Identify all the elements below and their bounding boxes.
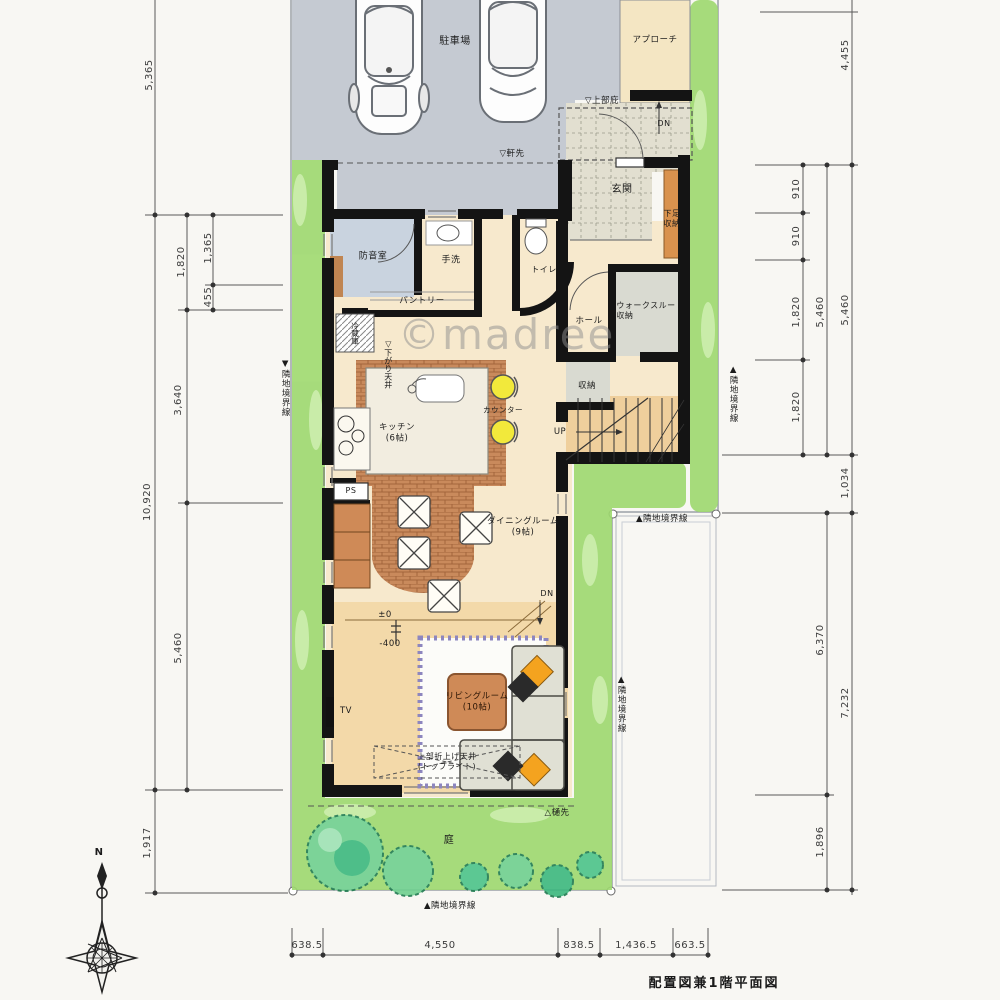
dim-left-outer-0: 5,365: [144, 59, 156, 90]
label-canopy: ▽上部庇: [585, 96, 619, 106]
dim-right-mid-2: 1,896: [815, 826, 827, 857]
label-counter: カウンター: [483, 406, 523, 415]
dim-left-sub-0: 1,365: [203, 232, 215, 263]
label-approach: アプローチ: [632, 35, 677, 45]
dim-right-outer-3: 7,232: [840, 687, 852, 718]
dim-left-outer-2: 1,917: [142, 827, 154, 858]
dim-right-outer-2: 1,034: [840, 467, 852, 498]
label-eaves: ▽軒先: [499, 149, 524, 159]
dim-bottom-0: 638.5: [291, 940, 322, 952]
dim-left-inner-1: 3,640: [173, 384, 185, 415]
dim-bottom-1: 4,550: [424, 940, 455, 952]
label-boundary-mid: ▲隣地境界線: [636, 514, 688, 524]
label-dn-living: DN: [540, 589, 553, 599]
dim-left-outer-1: 10,920: [142, 483, 154, 521]
dim-bottom-2: 838.5: [563, 940, 594, 952]
label-ceiling-note: 上部折上げ天井(トップライト): [417, 752, 477, 772]
label-kitchen: キッチン(6帖): [379, 422, 415, 443]
label-dropped-ceiling: ▽下がり天井: [383, 340, 393, 389]
dim-left-sub-1: 455: [203, 287, 215, 308]
dim-bottom-3: 1,436.5: [615, 940, 657, 952]
dim-bottom-4: 663.5: [674, 940, 705, 952]
label-storage: 収納: [578, 381, 596, 391]
label-walkthrough-storage: ウォークスルー収納: [616, 301, 675, 321]
label-entrance: 玄関: [612, 184, 633, 196]
label-dn-porch: DN: [657, 119, 670, 129]
dim-right-outer-1: 5,460: [840, 294, 852, 325]
label-parking: 駐車場: [439, 36, 471, 48]
label-dining: ダイニングルーム(9帖): [487, 516, 559, 537]
label-level-zero: ±0: [378, 610, 392, 620]
dim-right-inner-0: 910: [791, 179, 803, 200]
watermark: ©madree: [398, 310, 615, 360]
label-gutter: △樋先: [544, 808, 569, 818]
label-pantry: パントリー: [399, 296, 444, 306]
label-compass-north: N: [95, 847, 104, 859]
dim-left-inner-2: 5,460: [173, 632, 185, 663]
label-boundary-right-lower: ▲隣地境界線: [616, 675, 626, 734]
label-soundproof: 防音室: [359, 252, 388, 263]
label-boundary-bottom: ▲隣地境界線: [424, 901, 476, 911]
label-living: リビングルーム(10帖): [446, 691, 509, 712]
dim-right-inner-1: 910: [791, 226, 803, 247]
label-fridge: 冷蔵庫: [351, 322, 360, 345]
dim-right-mid-1: 6,370: [815, 624, 827, 655]
dim-right-inner-2: 1,820: [791, 296, 803, 327]
label-boundary-left: ▼隣地境界線: [280, 359, 290, 418]
dim-right-outer-0: 4,455: [840, 39, 852, 70]
label-toilet: トイレ: [531, 265, 557, 275]
dim-right-mid-0: 5,460: [815, 296, 827, 327]
label-shoe-storage: 下足収納: [664, 209, 681, 229]
label-garden: 庭: [444, 835, 455, 847]
label-washbasin: 手洗: [441, 256, 460, 267]
dim-right-inner-3: 1,820: [791, 391, 803, 422]
label-tv: TV: [340, 706, 352, 716]
label-ps: PS: [346, 486, 357, 496]
dim-left-inner-0: 1,820: [176, 246, 188, 277]
label-level-minus: -400: [379, 639, 400, 649]
label-up: UP: [554, 427, 566, 437]
floorplan-page: 駐車場 アプローチ ▽上部庇 DN ▽軒先 玄関 下足収納 防音室 手洗 トイレ…: [0, 0, 1000, 1000]
compass-icon: [68, 862, 136, 992]
label-boundary-right-upper: ▲隣地境界線: [728, 365, 738, 424]
page-title: 配置図兼1階平面図: [648, 976, 779, 992]
